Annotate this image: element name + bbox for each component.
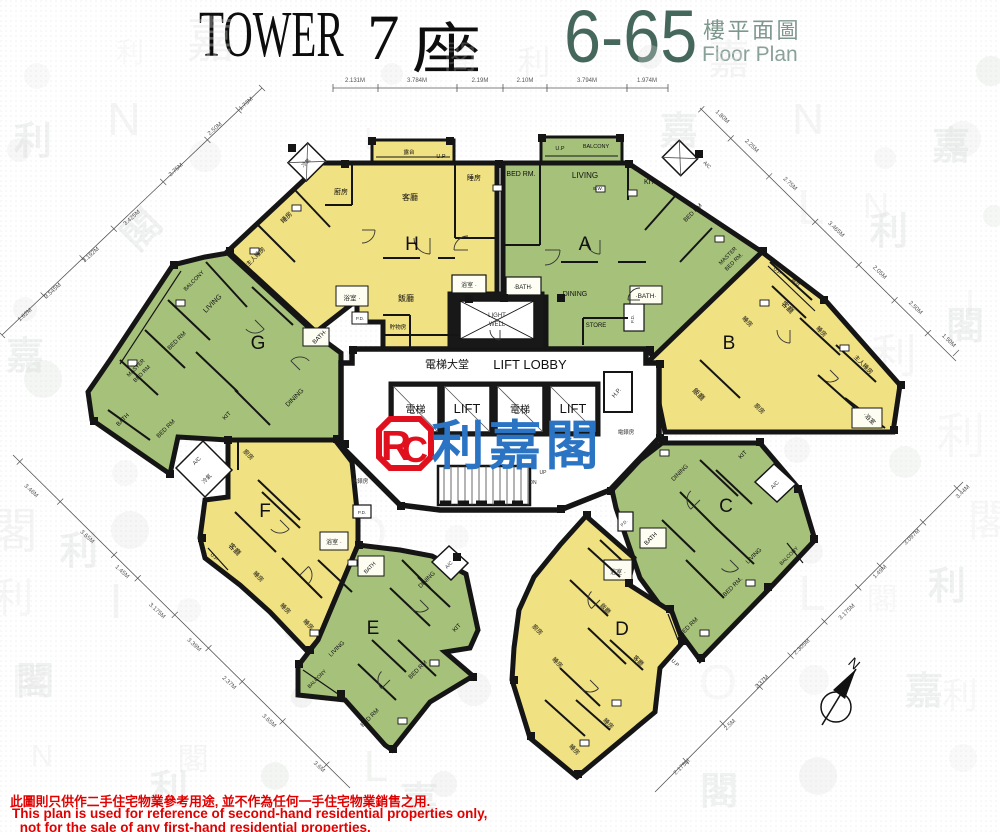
svg-text:U.P: U.P <box>555 146 565 152</box>
svg-text:A: A <box>579 234 592 255</box>
svg-text:2.37M: 2.37M <box>754 674 770 690</box>
svg-text:L: L <box>364 742 388 791</box>
svg-text:STORE: STORE <box>586 323 607 329</box>
svg-text:3.65M: 3.65M <box>261 713 277 729</box>
svg-text:2.75M: 2.75M <box>168 162 184 178</box>
svg-text:LIFT LOBBY: LIFT LOBBY <box>493 357 567 372</box>
svg-text:DN: DN <box>529 480 537 486</box>
svg-text:2.75M: 2.75M <box>782 176 798 192</box>
svg-text:1.974M: 1.974M <box>637 78 657 84</box>
svg-text:E: E <box>367 618 380 639</box>
svg-text:C: C <box>402 429 428 470</box>
svg-text:N: N <box>107 93 140 145</box>
svg-text:3.65M: 3.65M <box>79 529 95 545</box>
svg-text:N: N <box>792 95 824 144</box>
svg-text:露台: 露台 <box>403 148 415 156</box>
svg-text:3.794M: 3.794M <box>577 78 597 84</box>
svg-text:2.305M: 2.305M <box>793 638 812 656</box>
svg-text:P.D.: P.D. <box>358 510 366 515</box>
svg-text:O: O <box>699 656 737 710</box>
svg-text:1.80M: 1.80M <box>714 109 730 125</box>
svg-text:2.50M: 2.50M <box>907 300 923 316</box>
svg-text:睡房: 睡房 <box>467 173 481 182</box>
svg-text:浴室 ·: 浴室 · <box>461 281 477 289</box>
svg-text:閣: 閣 <box>867 582 898 617</box>
svg-text:P.D.: P.D. <box>630 315 635 323</box>
svg-text:·BATH·: ·BATH· <box>635 293 656 300</box>
svg-text:I: I <box>965 282 975 323</box>
svg-text:2.10M: 2.10M <box>517 78 534 84</box>
svg-text:利: 利 <box>518 44 551 81</box>
svg-text:BED RM.: BED RM. <box>506 171 535 178</box>
svg-text:利: 利 <box>942 675 978 716</box>
svg-text:飯廳: 飯廳 <box>398 293 414 303</box>
svg-text:閣: 閣 <box>178 742 209 777</box>
svg-text:1.50M: 1.50M <box>940 333 956 349</box>
svg-text:廚房: 廚房 <box>334 187 348 196</box>
svg-text:3.175M: 3.175M <box>147 602 166 620</box>
svg-text:DINING: DINING <box>563 291 588 298</box>
svg-text:3.784M: 3.784M <box>407 78 427 84</box>
svg-text:3.46M: 3.46M <box>23 483 39 499</box>
svg-text:P.D.: P.D. <box>356 316 364 321</box>
svg-text:H: H <box>405 234 419 255</box>
svg-text:I: I <box>109 575 123 629</box>
svg-text:N: N <box>863 185 889 226</box>
svg-text:1.73M: 1.73M <box>238 96 254 112</box>
svg-text:電梯: 電梯 <box>406 403 426 416</box>
svg-text:3.175M: 3.175M <box>838 603 857 621</box>
svg-text:3.545M: 3.545M <box>44 282 63 300</box>
svg-text:3.425M: 3.425M <box>123 209 142 227</box>
svg-text:2.37M: 2.37M <box>221 675 237 691</box>
svg-text:利: 利 <box>116 37 144 68</box>
svg-text:客廳: 客廳 <box>402 192 418 202</box>
svg-text:閣: 閣 <box>968 497 1000 546</box>
svg-text:BALCONY: BALCONY <box>583 144 610 150</box>
svg-text:A/C: A/C <box>702 160 712 170</box>
svg-text:嘉: 嘉 <box>186 14 235 68</box>
svg-text:N: N <box>845 654 863 673</box>
svg-text:N: N <box>31 738 53 773</box>
svg-text:LIFT: LIFT <box>560 401 587 416</box>
svg-text:浴室 ·: 浴室 · <box>326 538 342 546</box>
svg-text:L: L <box>798 567 825 621</box>
svg-text:D: D <box>615 619 629 640</box>
svg-text:閣: 閣 <box>444 39 477 76</box>
svg-text:1.49M: 1.49M <box>872 564 888 580</box>
svg-text:U.P: U.P <box>670 658 681 669</box>
svg-text:水錶房: 水錶房 <box>352 477 369 485</box>
svg-text:利嘉閣: 利嘉閣 <box>432 417 603 476</box>
svg-text:G: G <box>251 333 266 354</box>
svg-text:U.P: U.P <box>436 154 446 160</box>
svg-text:電梯大堂: 電梯大堂 <box>425 357 469 371</box>
svg-text:嘉: 嘉 <box>709 37 750 83</box>
svg-text:貯物房: 貯物房 <box>390 323 407 331</box>
svg-text:電錶房: 電錶房 <box>618 428 635 436</box>
svg-text:利: 利 <box>936 410 985 464</box>
svg-text:KIT.: KIT. <box>644 179 656 186</box>
svg-text:2.131M: 2.131M <box>345 78 365 84</box>
svg-text:LIFT: LIFT <box>454 401 481 416</box>
svg-text:閣: 閣 <box>12 661 48 702</box>
svg-text:2.05M: 2.05M <box>871 265 887 281</box>
svg-text:LIVING: LIVING <box>572 171 598 180</box>
svg-text:B.W.: B.W. <box>593 186 603 191</box>
svg-text:·BATH·: ·BATH· <box>513 285 533 291</box>
svg-text:利: 利 <box>0 575 34 621</box>
svg-text:2.25M: 2.25M <box>743 138 759 154</box>
svg-text:2.175M: 2.175M <box>673 758 692 776</box>
svg-text:F: F <box>259 501 271 522</box>
svg-text:3.192M: 3.192M <box>82 246 101 264</box>
svg-text:B: B <box>723 333 736 354</box>
svg-text:電梯: 電梯 <box>510 403 530 416</box>
svg-text:3.097M: 3.097M <box>903 528 922 546</box>
svg-text:3.39M: 3.39M <box>186 637 202 653</box>
svg-text:WELL: WELL <box>489 322 506 328</box>
svg-text:2.19M: 2.19M <box>472 78 489 84</box>
svg-text:2.50M: 2.50M <box>207 121 223 137</box>
svg-text:C: C <box>719 496 733 517</box>
svg-text:閣: 閣 <box>0 505 38 559</box>
svg-text:LIGHT: LIGHT <box>488 313 506 319</box>
svg-text:浴室 ·: 浴室 · <box>344 293 361 302</box>
